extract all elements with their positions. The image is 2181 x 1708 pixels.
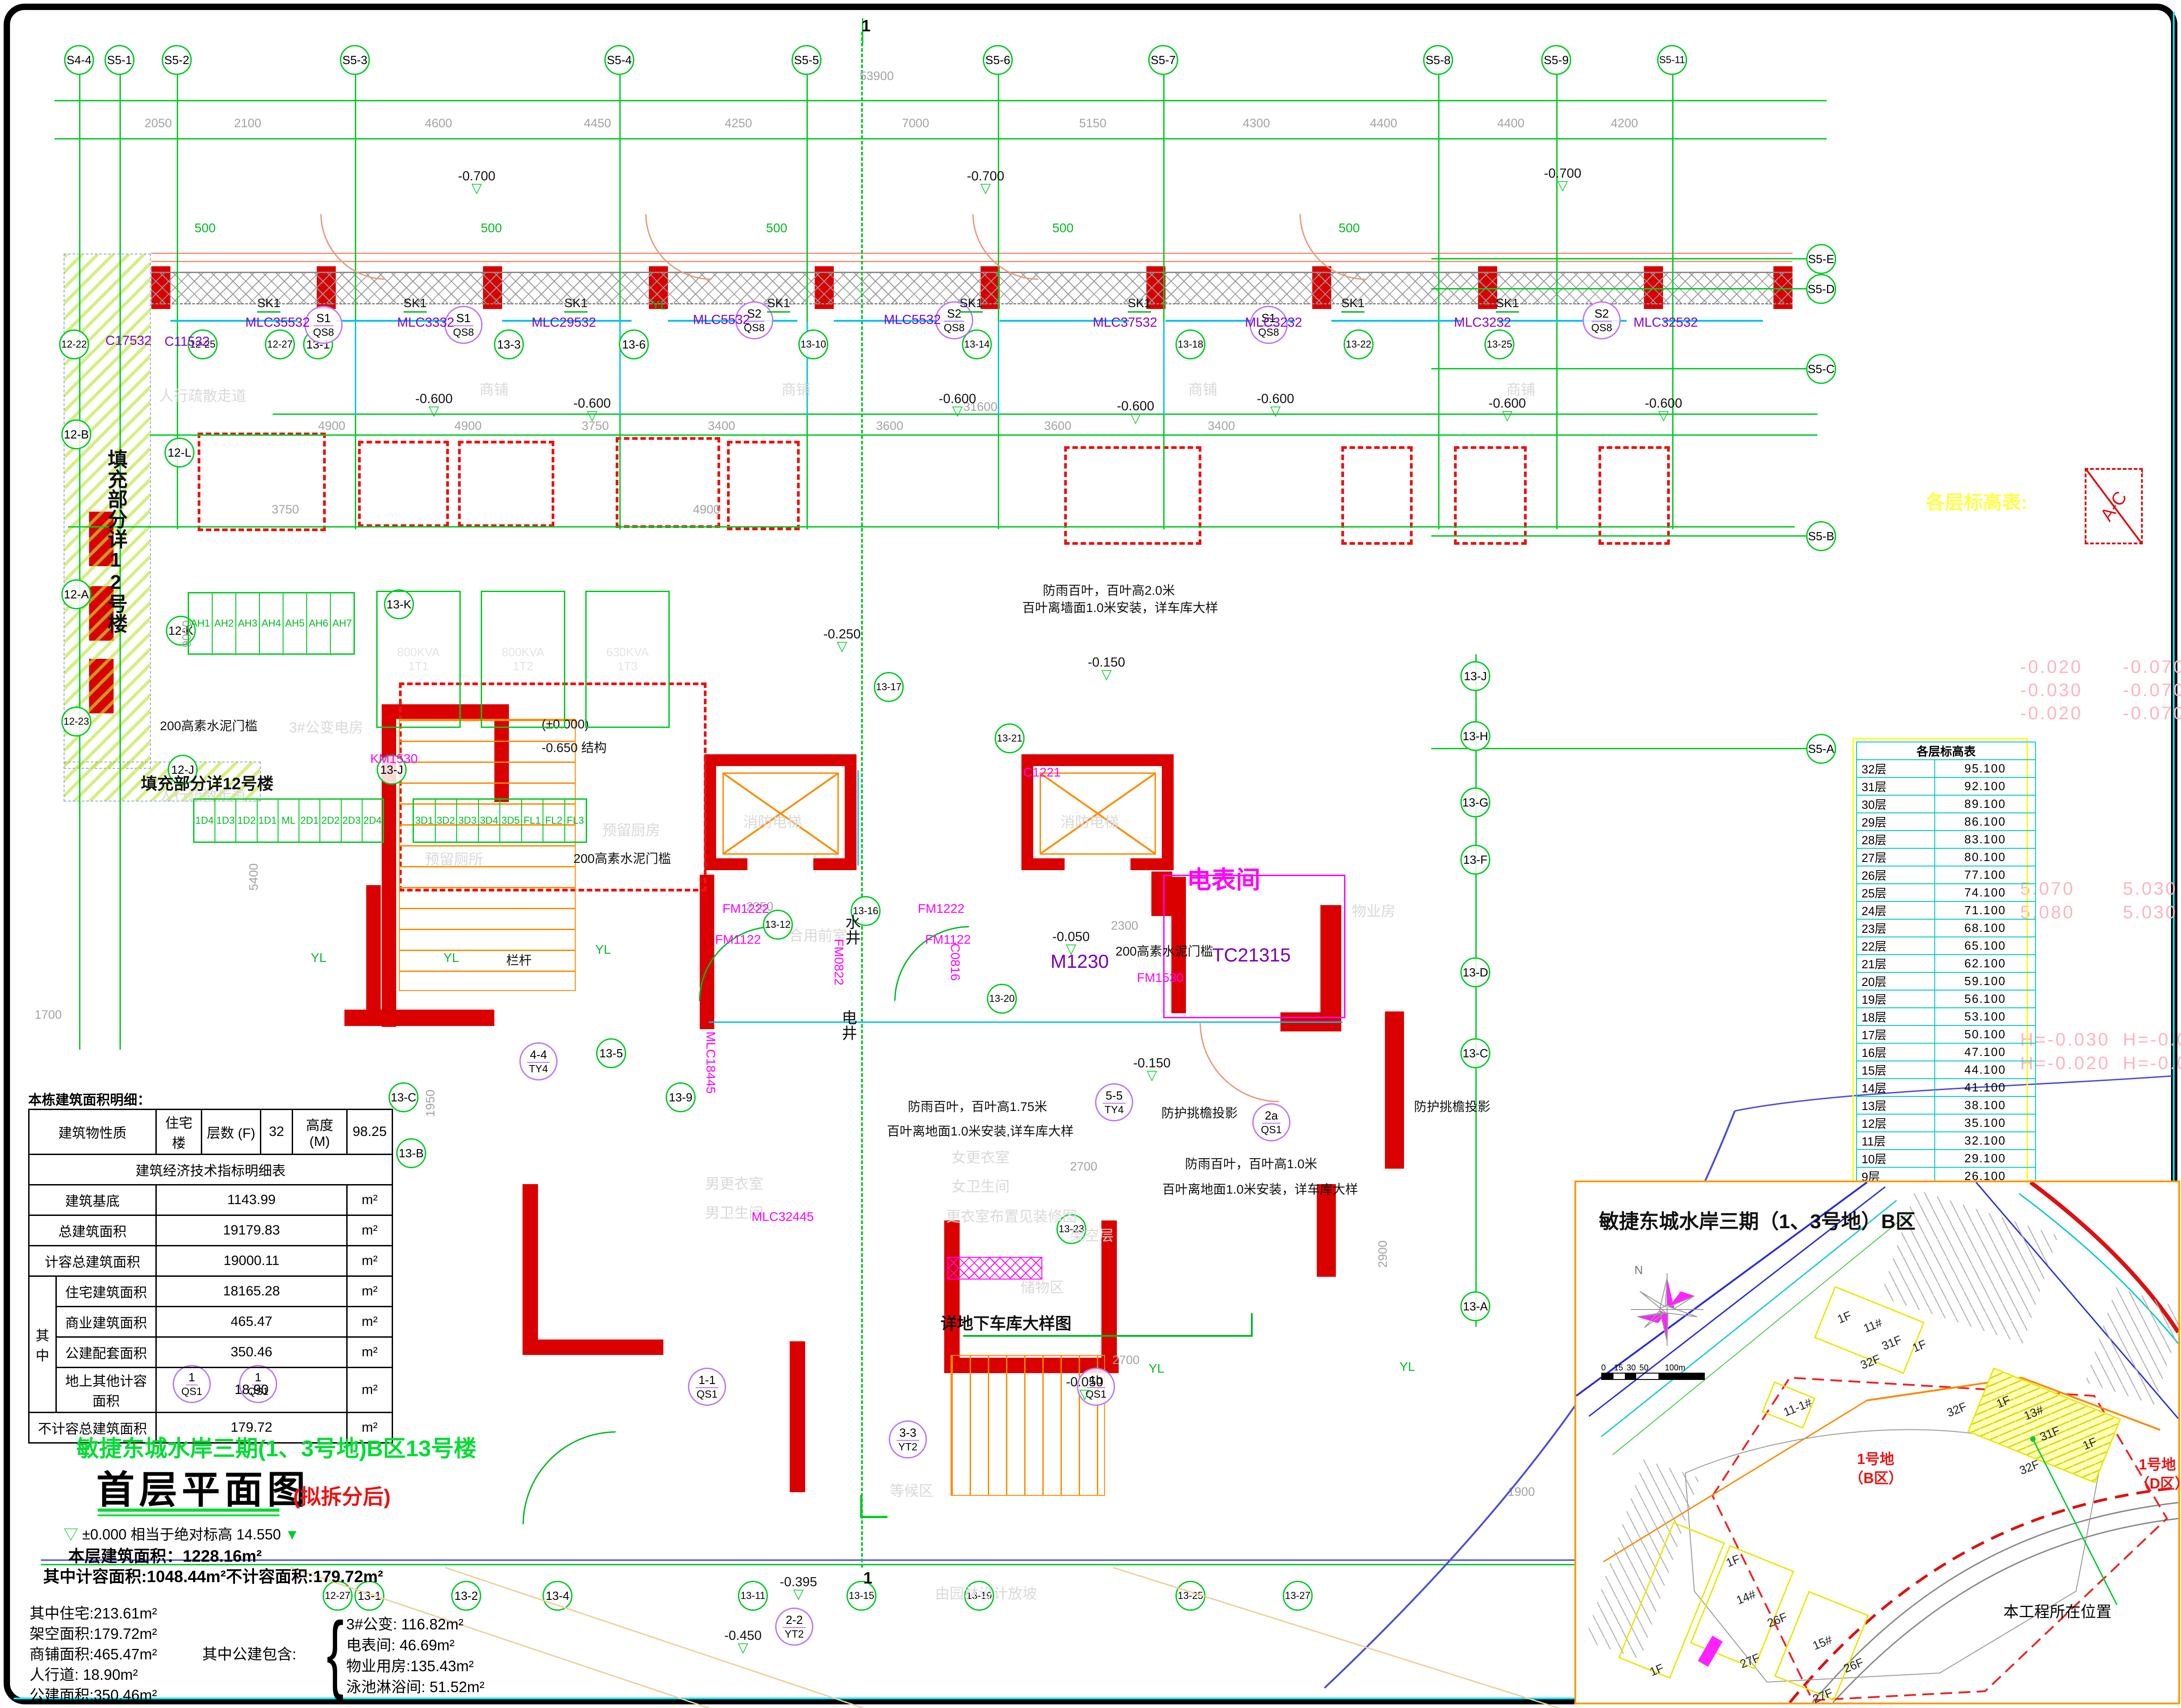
note-text: YL xyxy=(652,298,667,313)
note-text: 商铺 xyxy=(1506,378,1535,399)
grid-bubble: 13-2 xyxy=(451,1581,481,1611)
location-note: 本工程所在位置 xyxy=(2003,1599,2111,1622)
balcony-line xyxy=(151,253,1793,254)
elevation-cell: 47.100 xyxy=(1935,1043,2036,1061)
elevation-cell: 38.100 xyxy=(1935,1096,2036,1114)
incl-line: 泳池淋浴间: 51.52m² xyxy=(346,1675,484,1697)
datum-triangle-icon: ▽ xyxy=(64,1526,82,1543)
note-text: MLC5532 xyxy=(693,313,750,328)
note-text: M1230 xyxy=(1051,951,1109,972)
grid-bubble: S5-2 xyxy=(162,45,192,75)
elevation-mark: -0.600▽ xyxy=(1117,399,1154,423)
grid-bubble: 12-A xyxy=(61,579,91,609)
elevation-cell: 59.100 xyxy=(1935,972,2036,990)
cabinet-cell: AH3 xyxy=(236,593,260,653)
red-dashed-area xyxy=(1454,446,1527,545)
grid-line-v xyxy=(1475,654,1477,1327)
cabinet-cell: AH6 xyxy=(307,593,331,653)
area-line: 商铺面积:465.47m² xyxy=(30,1642,157,1664)
grid-line-h xyxy=(55,138,1827,139)
note-text: YL xyxy=(1149,1361,1164,1376)
elevation-cell: 14层 xyxy=(1857,1079,1935,1096)
cabinet-cell: 2D2 xyxy=(320,800,341,842)
grid-bubble: 13-D xyxy=(1460,957,1490,987)
indicator-cell: 建筑物性质 xyxy=(29,1110,156,1155)
note-text: 百叶离地面1.0米安装，详车库大样 xyxy=(1162,1180,1358,1198)
window-tag: SK1 xyxy=(1341,296,1364,313)
note-text: 男更衣室 xyxy=(705,1172,763,1193)
dim-label: 4200 xyxy=(1611,116,1638,130)
boundary-line xyxy=(41,1559,1658,1561)
elevation-triangle-icon: ▽ xyxy=(1502,411,1513,420)
grid-bubble: S4-4 xyxy=(64,45,94,75)
indicator-cell: m² xyxy=(347,1246,393,1276)
detail-circle-top: 2-2 xyxy=(783,1613,806,1628)
cabinet-cell: 3D5 xyxy=(500,800,522,842)
grid-bubble: 13-4 xyxy=(543,1581,573,1611)
indicator-cell: 高度 (M) xyxy=(293,1110,347,1155)
cabinet-cell: ML xyxy=(279,800,299,842)
window-tag: SK1 xyxy=(960,296,983,313)
cabinet-cell: AH5 xyxy=(284,593,307,653)
red-dashed-area xyxy=(1598,446,1670,545)
transformer-box: 800KVA1T2 xyxy=(481,591,565,728)
note-text: MLC37532 xyxy=(1093,315,1157,330)
note-text: 消防电梯 xyxy=(1061,811,1119,832)
elevation-cell: 83.100 xyxy=(1935,831,2036,848)
elevation-triangle-icon: ▽ xyxy=(952,407,963,416)
red-dashed-area xyxy=(358,441,449,527)
elevation-cell: 56.100 xyxy=(1935,990,2036,1008)
dim-label: 2100 xyxy=(234,116,261,130)
elevation-cell: 25层 xyxy=(1857,884,1935,901)
pink-overlay-text: -0.070 xyxy=(2123,680,2181,701)
dim-label: 4900 xyxy=(454,419,482,433)
indicator-cell: 建筑经济技术指标明细表 xyxy=(29,1155,393,1185)
north-label: N xyxy=(1634,1263,1643,1277)
red-dashed-area xyxy=(1064,446,1201,545)
parcel-d-label-2: （D区） xyxy=(2135,1472,2181,1493)
elevation-cell: 19层 xyxy=(1857,990,1935,1008)
grid-bubble: 13-17 xyxy=(874,672,904,702)
balcony-line xyxy=(151,261,1793,262)
transformer-id: 1T3 xyxy=(617,659,638,673)
wall xyxy=(1021,858,1065,870)
grid-bubble: 13-25 xyxy=(1175,1581,1205,1611)
grid-line-v xyxy=(1163,75,1165,529)
note-text: TC21315 xyxy=(1212,944,1291,966)
grid-bubble: S5-B xyxy=(1806,521,1836,551)
dim-label: 2050 xyxy=(144,116,172,130)
detail-circle-bottom: TY4 xyxy=(1105,1104,1124,1116)
elevation-mark: -0.700▽ xyxy=(458,169,495,193)
note-text: 由园林设计放坡 xyxy=(935,1582,1037,1603)
indicator-cell: 总建筑面积 xyxy=(29,1215,156,1246)
elevation-triangle-icon: ▽ xyxy=(837,642,847,651)
indicator-cell: 建筑基底 xyxy=(29,1185,156,1215)
cabinet-cell: FL2 xyxy=(543,800,565,842)
cabinet-cell: FL1 xyxy=(522,800,544,842)
window-line-v xyxy=(857,770,859,866)
note-text: 200高素水泥门槛 xyxy=(160,716,258,734)
elevation-cell: 26层 xyxy=(1857,866,1935,884)
dim-label: 3600 xyxy=(876,419,903,433)
dim-label: 4400 xyxy=(1370,116,1397,130)
detail-circle: 1-1QS1 xyxy=(688,1368,726,1406)
dim-label: 4900 xyxy=(693,503,720,517)
dim-label: 3600 xyxy=(1044,419,1071,433)
revision-stamp-text: A-C xyxy=(2096,488,2131,525)
grid-line-h xyxy=(55,100,1827,101)
scale-label: 50 xyxy=(1639,1363,1665,1373)
note-text: MLC32532 xyxy=(1633,315,1698,330)
grid-bubble: 13-3 xyxy=(494,329,524,359)
note-text: 物业房 xyxy=(1352,900,1395,921)
project-title: 敏捷东城水岸三期(1、3号地)B区13号楼 xyxy=(76,1430,477,1463)
elevation-triangle-icon: ▽ xyxy=(1658,411,1669,420)
area-line: 其中住宅:213.61m² xyxy=(30,1601,157,1623)
cabinet-cell: 1D2 xyxy=(236,800,257,842)
grid-bubble: S5-4 xyxy=(604,45,634,75)
section-line xyxy=(861,32,864,1568)
indicator-cell: m² xyxy=(347,1185,393,1215)
elevation-cell: 74.100 xyxy=(1935,884,2036,901)
pink-overlay-text: -0.020 xyxy=(2020,703,2082,724)
drawing-title-suffix: (拟拆分后) xyxy=(293,1480,391,1510)
detail-circle-top: S1 xyxy=(314,311,334,326)
pink-overlay-text: -0.070 xyxy=(2123,703,2181,724)
detail-circle: 2-2YT2 xyxy=(775,1608,813,1646)
window-tag: SK1 xyxy=(1496,296,1519,313)
parcel-b-label-2: （B区） xyxy=(1849,1467,1903,1488)
elevation-cell: 24层 xyxy=(1857,901,1935,919)
elevation-cell: 65.100 xyxy=(1935,937,2036,955)
window-tag: SK1 xyxy=(564,296,588,313)
dim-label: 4450 xyxy=(584,116,611,130)
datum-note: ▽ ±0.000 相当于绝对标高 14.550 ▼ xyxy=(64,1523,299,1544)
wall xyxy=(944,1220,960,1359)
dim-label: 4300 xyxy=(1243,116,1270,130)
elevation-mark: -0.600▽ xyxy=(1489,396,1526,420)
area-line: 公建面积:350.46m² xyxy=(30,1683,157,1705)
indicator-cell: 350.46 xyxy=(156,1337,347,1368)
indicator-cell: m² xyxy=(347,1368,393,1413)
indicator-cell: m² xyxy=(347,1276,393,1307)
pink-overlay-text: 5.030 xyxy=(2123,902,2177,923)
elevation-triangle-icon: ▽ xyxy=(981,184,991,193)
note-text: YL xyxy=(443,951,459,965)
grid-bubble: S5-7 xyxy=(1148,45,1178,75)
elevation-cell: 41.100 xyxy=(1935,1079,2036,1096)
elevation-triangle-icon: ▽ xyxy=(1558,181,1568,190)
elevation-triangle-icon: ▽ xyxy=(429,407,439,416)
indicator-cell: 计容总建筑面积 xyxy=(29,1246,156,1276)
elevation-mark: -0.600▽ xyxy=(1645,396,1682,420)
detail-circle: S2QS8 xyxy=(1583,301,1621,339)
indicator-cell: 其中 xyxy=(29,1276,56,1413)
window-tag: SK1 xyxy=(767,296,790,313)
cad-sheet: S4-4S5-1S5-2S5-3S5-4S5-5S5-6S5-7S5-8S5-9… xyxy=(0,0,2181,1708)
wall xyxy=(366,885,381,1021)
grid-line-v xyxy=(1672,75,1673,529)
elevation-triangle-icon: ▽ xyxy=(793,1590,804,1599)
elevation-cell: 50.100 xyxy=(1935,1026,2036,1043)
elevation-cell: 27层 xyxy=(1857,848,1935,866)
grid-line-v xyxy=(998,75,999,529)
dim-label: 4250 xyxy=(725,116,752,130)
note-text: YL xyxy=(595,942,611,957)
grid-bubble: S5-11 xyxy=(1657,45,1687,75)
note-text: KM1530 xyxy=(370,752,418,766)
note-text: 500 xyxy=(766,221,787,235)
cabinet-cell: 1D1 xyxy=(258,800,279,842)
transformer-box: 630KVA1T3 xyxy=(585,591,670,728)
grid-bubble: 13-5 xyxy=(596,1038,626,1068)
grid-bubble: 12-23 xyxy=(61,707,91,737)
grid-bubble: 12-B xyxy=(61,419,91,449)
wall xyxy=(790,1341,805,1492)
incl-line: 物业用房:135.43m² xyxy=(346,1654,474,1676)
indicator-cell: 商业建筑面积 xyxy=(56,1307,156,1337)
elevation-cell: 29层 xyxy=(1857,813,1935,831)
elevation-triangle-icon: ▽ xyxy=(1130,414,1141,423)
red-dashed-area xyxy=(727,441,800,530)
dim-label: 4400 xyxy=(1497,116,1524,130)
note-text: 储物区 xyxy=(1021,1276,1064,1297)
note-text: 架空层 xyxy=(1070,1224,1114,1245)
indicator-cell: 公建配套面积 xyxy=(56,1337,156,1368)
note-text: 200高素水泥门槛 xyxy=(573,849,671,867)
red-dashed-area xyxy=(458,441,554,527)
detail-circle-top: S1 xyxy=(453,311,473,326)
scale-label: 15 xyxy=(1614,1363,1627,1373)
note-text: 1 xyxy=(861,16,871,35)
grid-bubble: 13-B xyxy=(396,1138,426,1168)
grid-line-h xyxy=(273,413,1817,415)
elevation-mark: -0.150▽ xyxy=(1088,655,1125,679)
detail-circle-bottom: TY4 xyxy=(529,1063,548,1075)
note-text: C1221 xyxy=(1023,765,1061,780)
cabinet-row: AH1AH2AH3AH4AH5AH6AH7 xyxy=(188,592,355,655)
parcel-b-label-1: 1号地 xyxy=(1857,1448,1894,1469)
indicator-cell: 18165.28 xyxy=(156,1276,347,1307)
note-text: 1 xyxy=(863,1569,872,1588)
elevation-cell: 16层 xyxy=(1857,1043,1935,1061)
note-text: 栏杆 xyxy=(506,951,532,969)
note-text: 商铺 xyxy=(479,378,508,399)
detail-circle-top: 1-1 xyxy=(696,1373,718,1388)
grid-line-h xyxy=(1431,368,1808,369)
dim-label: 3400 xyxy=(708,419,735,433)
dim-label: 2700 xyxy=(1070,1160,1097,1174)
note-text: 预留厕所 xyxy=(425,848,483,869)
note-text: MLC3332 xyxy=(397,315,454,330)
grid-bubble: 13-G xyxy=(1460,787,1490,817)
detail-circle-bottom: QS8 xyxy=(453,326,474,339)
wall xyxy=(1130,858,1174,870)
indicator-cell: 19000.11 xyxy=(156,1246,347,1276)
grid-bubble: 13-21 xyxy=(995,723,1025,753)
note-text: FM1222 xyxy=(918,901,965,916)
detail-circle-bottom: QS1 xyxy=(697,1388,717,1400)
grid-line-v xyxy=(1556,75,1558,529)
grid-bubble: 13-F xyxy=(1460,845,1490,875)
elevation-triangle-icon: ▽ xyxy=(1270,407,1281,416)
elevation-mark: -0.150▽ xyxy=(1133,1056,1170,1080)
wall xyxy=(704,754,856,766)
elevation-cell: 77.100 xyxy=(1935,866,2036,884)
elevation-cell: 32层 xyxy=(1857,760,1935,777)
transformer-id: 1T2 xyxy=(513,659,533,673)
elevation-cell: 35.100 xyxy=(1935,1114,2036,1132)
title-underline-2 xyxy=(98,1514,279,1516)
note-text: MLC3232 xyxy=(1454,315,1511,330)
wall xyxy=(344,1010,494,1026)
note-text: 消防电梯 xyxy=(743,811,802,832)
detail-circle-bottom: YT2 xyxy=(898,1441,917,1453)
detail-circle-top: 4-4 xyxy=(527,1048,550,1063)
grid-bubble: S5-9 xyxy=(1541,45,1571,75)
note-text: MLC29532 xyxy=(532,315,596,330)
note-text: 500 xyxy=(1052,221,1074,235)
detail-circle-bottom: QS8 xyxy=(1591,322,1612,334)
grid-bubble: 12-27 xyxy=(265,329,295,359)
wind-rose-icon xyxy=(1631,1273,1703,1346)
dim-label: 5150 xyxy=(1079,116,1106,130)
note-text: 200高素水泥门槛 xyxy=(1115,941,1213,960)
elevation-cell: 18层 xyxy=(1857,1008,1935,1026)
grid-line-h xyxy=(860,1516,887,1518)
dim-label: 7000 xyxy=(902,116,929,130)
cabinet-cell: AH7 xyxy=(331,593,354,653)
grid-line-v xyxy=(1438,75,1439,529)
elevation-cell: 17层 xyxy=(1857,1026,1935,1043)
indicator-cell: 层数 (F) xyxy=(202,1110,261,1155)
grid-line-v xyxy=(619,75,621,529)
note-text: 填充部分详12号楼 xyxy=(141,771,274,794)
note-text: 等候区 xyxy=(890,1479,933,1500)
note-text: MLC3232 xyxy=(1245,315,1302,330)
grid-line-v xyxy=(807,75,808,529)
elevation-triangle-icon: ▽ xyxy=(472,184,482,193)
note-text: 女更衣室 xyxy=(951,1146,1010,1167)
note-text: 商铺 xyxy=(782,378,811,399)
detail-circle: 3-3YT2 xyxy=(889,1420,927,1459)
grid-bubble: 13-27 xyxy=(1283,1581,1313,1611)
title-underline-1 xyxy=(98,1509,279,1512)
note-text: 电表间 xyxy=(1187,860,1260,896)
note-text: FM0822 xyxy=(832,939,846,986)
grid-bubble: 13-A xyxy=(1460,1291,1490,1321)
detail-circle: S1QS8 xyxy=(304,306,343,344)
note-text: C17532 xyxy=(105,334,152,349)
dim-label: 1950 xyxy=(423,1090,438,1117)
brace: { xyxy=(327,1603,344,1702)
grid-line-h xyxy=(150,434,1817,436)
note-text: 防雨百叶，百叶高1.75米 xyxy=(908,1097,1047,1115)
note-text: 500 xyxy=(194,221,216,235)
note-text: 人行疏散走道 xyxy=(159,384,246,405)
dim-label: 1900 xyxy=(1508,1485,1535,1499)
cabinet-cell: 2D3 xyxy=(342,800,363,842)
detail-circle-bottom: YT2 xyxy=(785,1628,804,1640)
grid-line-h xyxy=(1431,258,1808,259)
grid-bubble: S5-8 xyxy=(1423,45,1453,75)
window-tag: SK1 xyxy=(1128,296,1151,313)
window-tag: SK1 xyxy=(257,296,280,313)
note-text: C11532 xyxy=(164,334,209,349)
indicator-cell: m² xyxy=(347,1307,393,1337)
note-text: 防雨百叶，百叶高1.0米 xyxy=(1185,1154,1317,1172)
note-text: 防护挑檐投影 xyxy=(1161,1103,1238,1121)
indicator-cell: 465.47 xyxy=(156,1307,347,1337)
elevation-cell: 31层 xyxy=(1857,777,1935,795)
drawing-title: 首层平面图 xyxy=(96,1459,310,1514)
dim-label: 3750 xyxy=(272,503,299,517)
elevation-cell: 62.100 xyxy=(1935,955,2036,972)
cabinet-cell: 1D3 xyxy=(215,800,236,842)
grid-bubble: 13-9 xyxy=(666,1082,696,1112)
indicator-cell: 32 xyxy=(261,1110,293,1155)
elevation-mark: -0.050▽ xyxy=(1066,1375,1103,1399)
window-line-v xyxy=(619,322,621,415)
transformer-box: 800KVA1T1 xyxy=(376,591,461,728)
pink-overlay-text: -0.070 xyxy=(2123,657,2181,677)
grid-bubble: 13-11 xyxy=(738,1581,768,1611)
note-text: -0.650 结构 xyxy=(542,738,607,756)
elevation-triangle-icon: ▽ xyxy=(587,411,598,420)
transformer-id: 1T1 xyxy=(408,659,429,673)
elevation-cell: 80.100 xyxy=(1935,848,2036,866)
dim-label: 2700 xyxy=(1112,1353,1140,1367)
elevation-cell: 32.100 xyxy=(1935,1132,2036,1150)
grid-bubble: S5-6 xyxy=(983,45,1013,75)
detail-circle: 4-4TY4 xyxy=(519,1042,558,1081)
incl-label: 其中公建包含: xyxy=(202,1642,296,1664)
wall xyxy=(1317,1184,1336,1277)
note-text: FM1222 xyxy=(722,901,769,916)
elevation-mark: -0.450▽ xyxy=(724,1628,762,1653)
dim-label: 1700 xyxy=(35,1008,62,1022)
cabinet-cell: 3D4 xyxy=(479,800,501,842)
elevation-triangle-icon: ▽ xyxy=(738,1643,748,1653)
note-text: FM1122 xyxy=(715,932,761,947)
elevation-mark: -0.700▽ xyxy=(1544,166,1581,190)
grid-bubble: 12-L xyxy=(164,438,194,468)
dim-label: 2900 xyxy=(1376,1240,1390,1268)
elevation-cell: 71.100 xyxy=(1935,901,2036,919)
grid-bubble: 13-J xyxy=(1460,661,1490,691)
wall xyxy=(1385,1011,1404,1169)
note-text: 预留厨房 xyxy=(602,819,660,840)
elevation-cell: 53.100 xyxy=(1935,1008,2036,1026)
elevation-cell: 89.100 xyxy=(1935,795,2036,813)
elevation-cell: 95.100 xyxy=(1935,760,2036,777)
elevation-cell: 13层 xyxy=(1857,1096,1935,1114)
note-text: 商铺 xyxy=(1188,378,1217,399)
cabinet-row: 1D41D31D21D1ML2D12D22D32D4 xyxy=(193,798,384,843)
note-text: 500 xyxy=(481,221,502,235)
indicator-cell: 1143.99 xyxy=(156,1185,347,1215)
elevation-cell: 15层 xyxy=(1857,1061,1935,1079)
transformer-kva: 630KVA xyxy=(606,645,648,659)
grid-bubble: S5-D xyxy=(1806,274,1836,304)
elevation-mark: -0.250▽ xyxy=(823,627,861,651)
grid-bubble: S5-5 xyxy=(792,45,822,75)
elevation-mark: -0.600▽ xyxy=(939,392,976,416)
elevation-triangle-icon: ▽ xyxy=(1101,670,1112,679)
cabinet-cell: AH2 xyxy=(213,593,236,653)
